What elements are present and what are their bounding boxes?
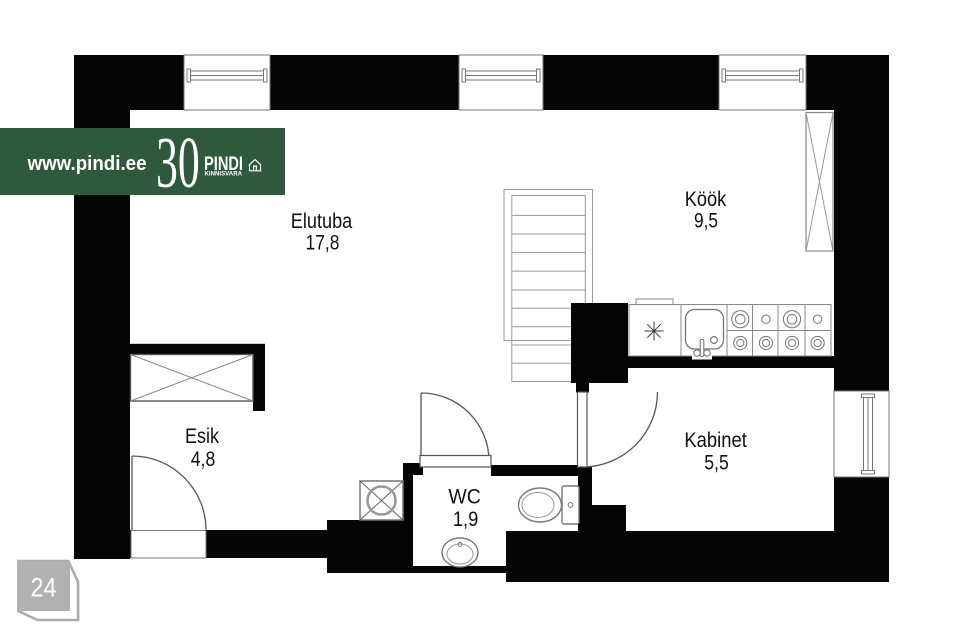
svg-text:30: 30 — [156, 123, 200, 204]
svg-text:17,8: 17,8 — [306, 232, 340, 255]
svg-text:Köök: Köök — [685, 188, 727, 211]
svg-text:KINNISVARA: KINNISVARA — [205, 171, 243, 178]
svg-text:9,5: 9,5 — [694, 210, 718, 233]
svg-text:5,5: 5,5 — [704, 452, 729, 475]
svg-text:Kabinet: Kabinet — [684, 429, 747, 452]
svg-text:Elutuba: Elutuba — [291, 210, 353, 233]
svg-text:WC: WC — [448, 486, 481, 509]
svg-text:Esik: Esik — [185, 425, 219, 448]
svg-text:4,8: 4,8 — [191, 448, 216, 471]
svg-text:www.pindi.ee: www.pindi.ee — [27, 153, 147, 175]
svg-text:1,9: 1,9 — [453, 508, 479, 531]
svg-text:24: 24 — [31, 573, 57, 603]
